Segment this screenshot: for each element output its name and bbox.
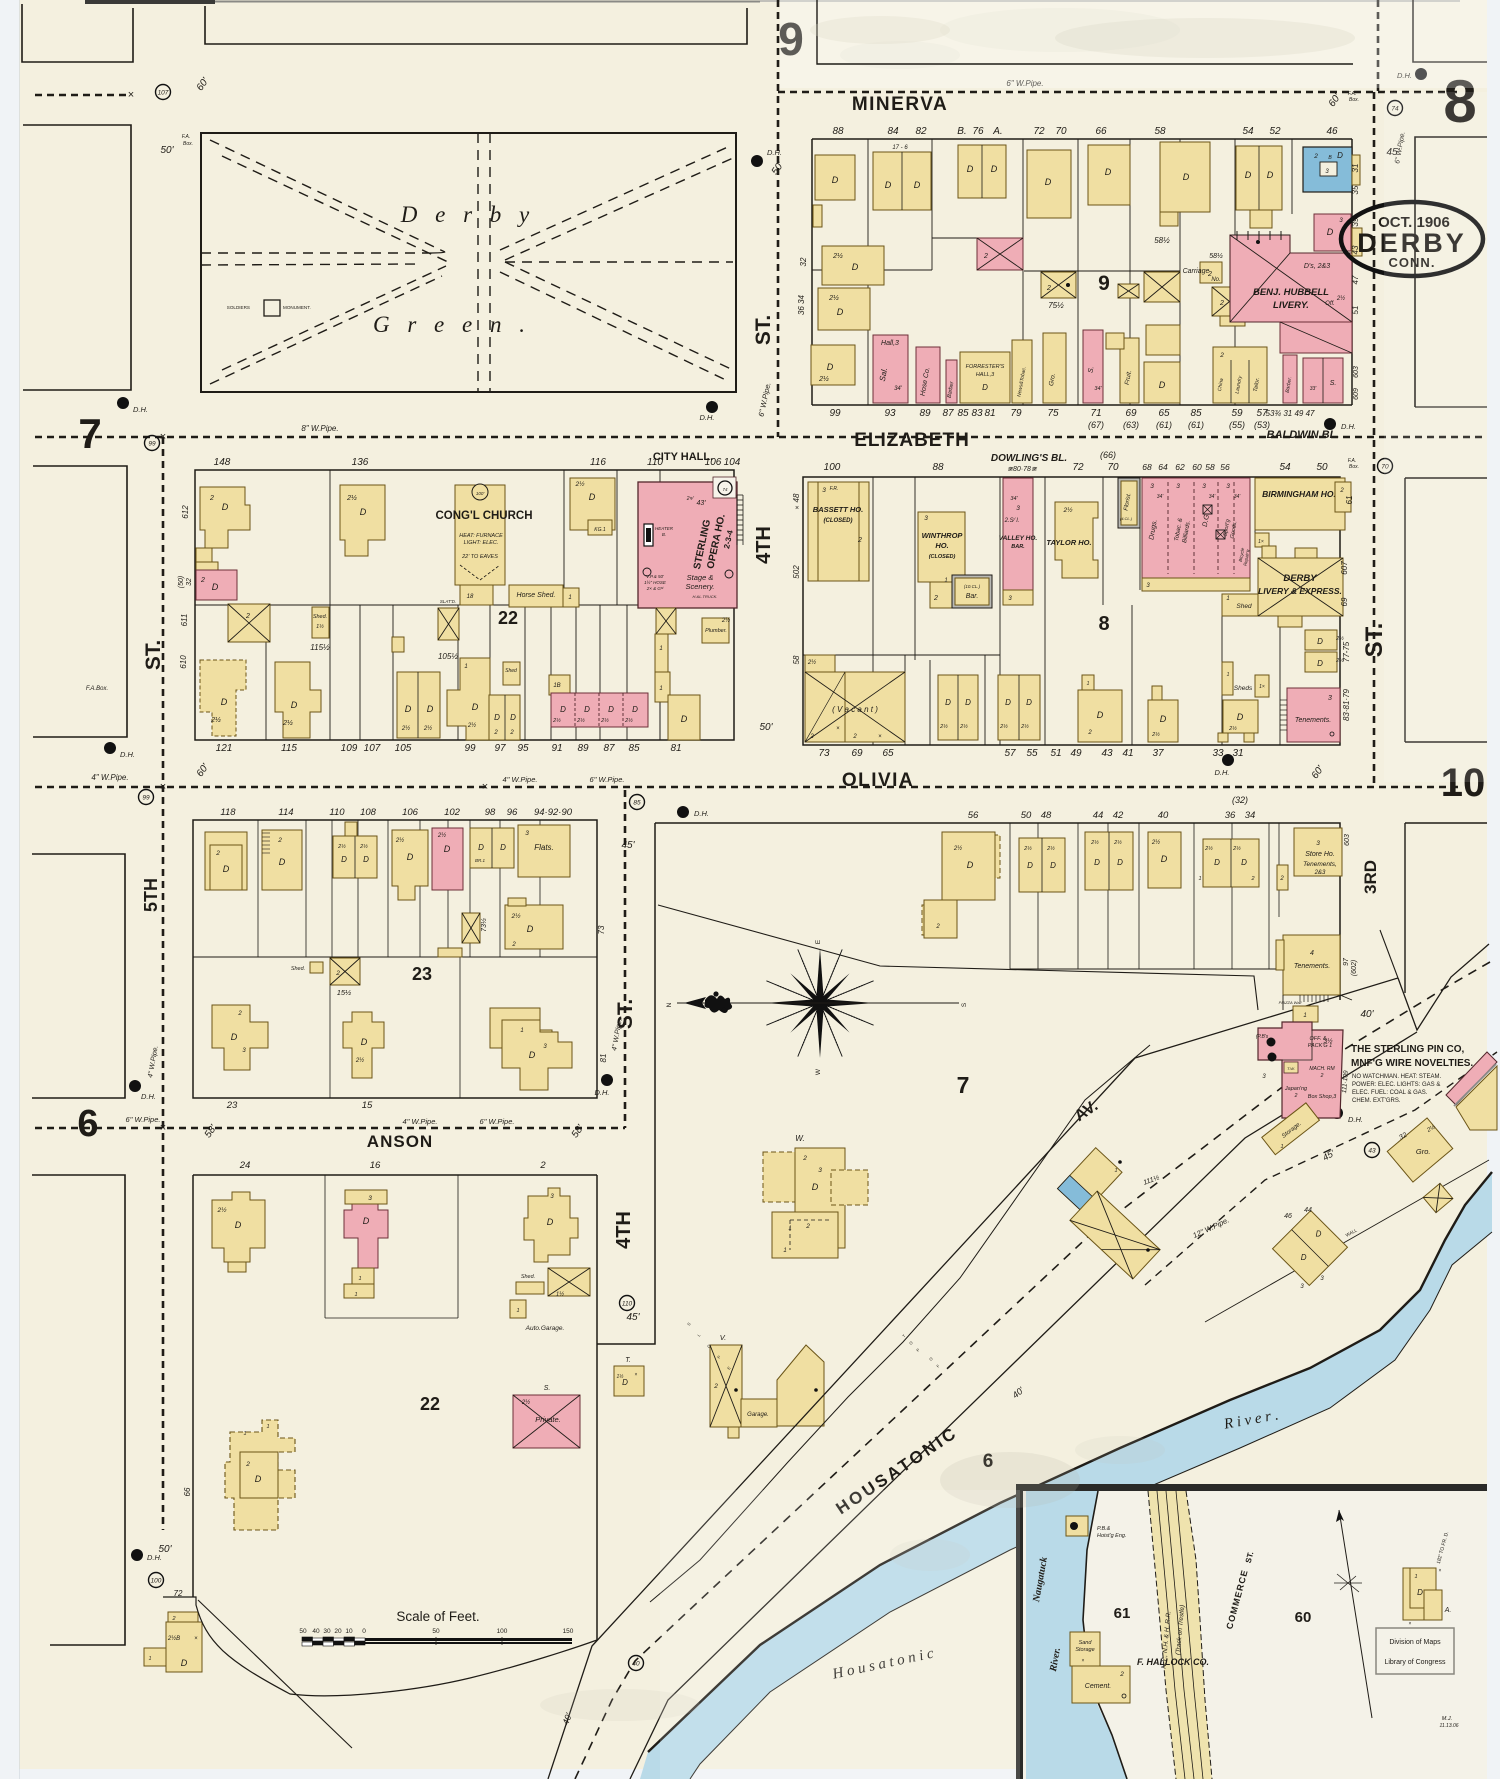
svg-text:2½: 2½ <box>832 252 843 260</box>
svg-text:2½: 2½ <box>1020 723 1029 730</box>
svg-text:43': 43' <box>696 500 706 507</box>
svg-text:D: D <box>1159 380 1166 390</box>
svg-text:A.: A. <box>1444 1607 1452 1614</box>
svg-text:2½: 2½ <box>282 719 293 727</box>
svg-text:D e r b y: D e r b y <box>400 202 535 227</box>
svg-text:Box.: Box. <box>1349 464 1359 470</box>
svg-text:73: 73 <box>597 925 606 934</box>
svg-text:D: D <box>1094 858 1100 867</box>
svg-text:LIGHT: ELEC.: LIGHT: ELEC. <box>464 540 499 546</box>
svg-text:FORRESTER'S: FORRESTER'S <box>966 364 1005 370</box>
svg-text:91: 91 <box>551 743 562 754</box>
svg-text:51: 51 <box>1050 748 1061 759</box>
svg-text:44: 44 <box>1304 1207 1312 1214</box>
svg-text:D: D <box>584 705 590 714</box>
svg-text:ANSON: ANSON <box>367 1132 433 1151</box>
svg-text:1: 1 <box>1114 1168 1117 1174</box>
svg-text:61: 61 <box>1114 1605 1131 1622</box>
svg-text:16: 16 <box>370 1160 381 1171</box>
svg-text:2: 2 <box>933 595 938 602</box>
svg-text:D: D <box>1237 712 1244 722</box>
svg-text:50: 50 <box>299 1628 307 1635</box>
svg-text:T.: T. <box>625 1357 631 1364</box>
svg-text:98: 98 <box>485 807 496 818</box>
svg-text:Garage.: Garage. <box>747 1412 769 1418</box>
svg-text:41: 41 <box>1122 748 1133 759</box>
svg-text:89: 89 <box>919 408 931 419</box>
svg-text:D: D <box>1317 659 1323 668</box>
svg-text:CHEM. EXT'GRS.: CHEM. EXT'GRS. <box>1352 1098 1401 1104</box>
svg-text:DOWLING'S BL.: DOWLING'S BL. <box>991 453 1067 464</box>
svg-text:Carriage: Carriage <box>1183 268 1210 275</box>
svg-text:Shed.: Shed. <box>313 614 327 620</box>
svg-text:1: 1 <box>783 1248 786 1254</box>
svg-text:D: D <box>967 164 974 174</box>
svg-text:54: 54 <box>1279 462 1291 473</box>
svg-text:D: D <box>1317 637 1323 646</box>
svg-text:2: 2 <box>245 613 250 620</box>
svg-text:D: D <box>510 713 516 722</box>
svg-text:84: 84 <box>887 126 899 137</box>
svg-text:3: 3 <box>818 1167 822 1174</box>
svg-text:S: S <box>961 1002 968 1007</box>
svg-text:Box.: Box. <box>183 141 193 147</box>
svg-text:56: 56 <box>1220 462 1230 472</box>
svg-text:×: × <box>160 1122 166 1134</box>
svg-text:2½: 2½ <box>216 1206 227 1214</box>
svg-text:MONUMENT.: MONUMENT. <box>283 305 311 310</box>
svg-text:100: 100 <box>824 462 841 473</box>
svg-text:HO.: HO. <box>935 541 948 550</box>
svg-text:1: 1 <box>1198 876 1201 882</box>
svg-text:55: 55 <box>1026 748 1038 759</box>
svg-text:4" W.Pipe.: 4" W.Pipe. <box>91 773 128 782</box>
svg-text:D: D <box>812 1182 819 1192</box>
svg-text:D: D <box>444 844 451 854</box>
svg-text:60: 60 <box>1295 1609 1312 1626</box>
svg-text:42: 42 <box>1113 810 1124 821</box>
svg-text:85: 85 <box>1190 408 1202 419</box>
svg-text:75: 75 <box>1047 408 1059 419</box>
svg-text:2: 2 <box>1219 352 1224 359</box>
svg-text:Flats.: Flats. <box>534 843 554 852</box>
svg-text:D: D <box>1117 858 1123 867</box>
svg-text:610: 610 <box>179 655 188 669</box>
svg-text:×: × <box>194 1636 198 1642</box>
svg-text:Off.: Off. <box>1325 301 1335 307</box>
svg-text:(63): (63) <box>1123 420 1139 430</box>
svg-text:OLIVIA: OLIVIA <box>842 770 914 791</box>
svg-text:1: 1 <box>659 686 662 692</box>
svg-text:48: 48 <box>792 493 801 502</box>
svg-text:3: 3 <box>924 515 928 522</box>
svg-text:D.H.: D.H. <box>1348 1115 1363 1124</box>
svg-text:2½: 2½ <box>437 832 446 839</box>
svg-text:4TH: 4TH <box>613 1211 635 1249</box>
svg-text:2: 2 <box>209 495 214 502</box>
svg-text:LIVERY.: LIVERY. <box>1273 300 1309 311</box>
svg-text:87: 87 <box>942 408 954 419</box>
svg-text:M.J.: M.J. <box>1442 1716 1452 1722</box>
svg-text:D: D <box>852 262 859 272</box>
svg-text:2½: 2½ <box>1046 845 1055 852</box>
svg-text:D: D <box>221 697 228 707</box>
svg-text:3: 3 <box>1150 483 1154 490</box>
svg-text:69: 69 <box>1125 408 1137 419</box>
svg-text:88: 88 <box>832 126 844 137</box>
svg-text:66: 66 <box>1095 126 1107 137</box>
svg-text:BASSETT HO.: BASSETT HO. <box>813 505 863 514</box>
svg-text:2: 2 <box>493 730 498 736</box>
svg-text:2: 2 <box>511 942 516 948</box>
svg-text:(66): (66) <box>1100 450 1116 460</box>
svg-text:D: D <box>945 698 951 707</box>
svg-text:58: 58 <box>1154 126 1166 137</box>
svg-text:1: 1 <box>1226 596 1229 602</box>
svg-text:2½: 2½ <box>576 717 585 724</box>
svg-text:99: 99 <box>464 743 476 754</box>
svg-text:(CLOSED): (CLOSED) <box>929 554 956 560</box>
svg-text:2½: 2½ <box>721 617 730 624</box>
svg-text:35: 35 <box>1351 185 1360 194</box>
svg-text:8: 8 <box>1098 613 1109 635</box>
svg-text:Shed.: Shed. <box>291 966 305 972</box>
svg-text:Hall,3: Hall,3 <box>881 340 899 347</box>
svg-text:WINTHROP: WINTHROP <box>922 531 964 540</box>
svg-text:2: 2 <box>277 837 282 844</box>
svg-text:2½: 2½ <box>401 725 410 732</box>
svg-text:D: D <box>527 924 534 934</box>
svg-text:2½: 2½ <box>1335 635 1344 642</box>
svg-text:46: 46 <box>1284 1213 1292 1220</box>
svg-text:HALL,3: HALL,3 <box>976 372 995 378</box>
svg-text:603: 603 <box>1353 366 1360 378</box>
svg-text:502: 502 <box>792 565 801 579</box>
svg-text:×: × <box>482 781 488 793</box>
svg-text:34': 34' <box>1157 494 1165 500</box>
svg-text:NO WATCHMAN. HEAT: STEAM.: NO WATCHMAN. HEAT: STEAM. <box>1352 1074 1442 1080</box>
svg-text:43: 43 <box>1101 748 1113 759</box>
svg-text:1: 1 <box>568 595 571 601</box>
svg-text:S.: S. <box>544 1385 551 1392</box>
svg-text:2: 2 <box>1119 1671 1124 1678</box>
svg-text:0: 0 <box>362 1628 366 1635</box>
svg-text:1: 1 <box>944 578 947 584</box>
svg-text:D: D <box>982 383 988 392</box>
svg-text:45': 45' <box>621 840 635 851</box>
svg-text:23: 23 <box>226 1100 238 1111</box>
svg-text:100': 100' <box>476 491 485 496</box>
svg-text:69: 69 <box>851 748 863 759</box>
svg-text:ST.: ST. <box>142 640 165 670</box>
svg-text:1: 1 <box>243 1431 246 1437</box>
svg-text:64: 64 <box>1158 462 1168 472</box>
svg-text:1B: 1B <box>553 683 560 689</box>
svg-text:1: 1 <box>659 646 662 652</box>
svg-text:D: D <box>494 713 500 722</box>
svg-text:58: 58 <box>1205 462 1215 472</box>
svg-text:148: 148 <box>214 457 231 468</box>
svg-text:D: D <box>181 1658 188 1668</box>
svg-text:83·81·79: 83·81·79 <box>1342 688 1351 721</box>
svg-text:SOLDIERS: SOLDIERS <box>227 305 250 310</box>
svg-text:D's, 2&3: D's, 2&3 <box>1304 263 1330 270</box>
svg-text:P.B.&: P.B.& <box>1097 1526 1111 1532</box>
svg-text:3: 3 <box>368 1195 372 1202</box>
svg-text:45': 45' <box>626 1312 640 1323</box>
svg-text:2½: 2½ <box>1336 295 1345 302</box>
svg-text:V.: V. <box>720 1333 727 1342</box>
svg-text:D.H.: D.H. <box>1215 768 1230 777</box>
svg-text:87: 87 <box>603 743 615 754</box>
svg-text:9: 9 <box>1098 272 1110 295</box>
svg-text:609: 609 <box>1353 388 1360 400</box>
svg-text:31: 31 <box>1351 164 1360 173</box>
svg-text:2: 2 <box>215 850 220 857</box>
svg-text:2: 2 <box>805 1223 810 1230</box>
svg-text:105½: 105½ <box>438 652 458 661</box>
svg-text:2½: 2½ <box>1113 839 1122 846</box>
svg-text:2½: 2½ <box>1023 845 1032 852</box>
svg-text:2: 2 <box>1046 285 1051 292</box>
svg-text:(61): (61) <box>1188 420 1204 430</box>
svg-text:1: 1 <box>1303 1013 1306 1019</box>
svg-text:24: 24 <box>239 1160 251 1171</box>
svg-text:107: 107 <box>364 743 381 754</box>
svg-text:1: 1 <box>1227 672 1230 678</box>
svg-text:×: × <box>635 1372 638 1378</box>
svg-text:34': 34' <box>1209 494 1217 500</box>
svg-text:85: 85 <box>628 743 640 754</box>
svg-text:2: 2 <box>1219 300 1224 307</box>
svg-text:74: 74 <box>722 487 728 492</box>
svg-text:D.H.: D.H. <box>767 148 782 157</box>
svg-text:Cement.: Cement. <box>1085 1683 1112 1690</box>
svg-text:44: 44 <box>1093 810 1104 821</box>
svg-text:(10.CL.): (10.CL.) <box>964 584 981 589</box>
svg-text:Sand: Sand <box>1079 1640 1093 1646</box>
svg-text:D: D <box>341 855 347 864</box>
svg-text:D: D <box>529 1050 536 1060</box>
svg-text:2: 2 <box>1087 730 1092 736</box>
svg-text:D: D <box>361 1037 368 1047</box>
svg-text:MINERVA: MINERVA <box>852 94 948 115</box>
svg-text:D.H.: D.H. <box>1341 422 1356 431</box>
svg-text:72: 72 <box>1033 126 1045 137</box>
svg-text:Division of Maps: Division of Maps <box>1389 1639 1441 1646</box>
svg-text:48: 48 <box>1041 810 1052 821</box>
svg-text:V.P.& 50': V.P.& 50' <box>646 574 664 579</box>
svg-text:99: 99 <box>148 440 156 447</box>
svg-text:D.H.: D.H. <box>133 405 148 414</box>
svg-text:7: 7 <box>957 1072 970 1098</box>
svg-text:F.A.Box.: F.A.Box. <box>86 686 108 692</box>
svg-text:D: D <box>967 860 974 870</box>
svg-text:Storage: Storage <box>1075 1647 1094 1653</box>
svg-text:102: 102 <box>444 807 461 818</box>
svg-text:D: D <box>472 702 479 712</box>
svg-text:MNF'G WIRE NOVELTIES.: MNF'G WIRE NOVELTIES. <box>1351 1058 1473 1069</box>
svg-text:75½: 75½ <box>1048 301 1064 310</box>
svg-text:(CLOSED): (CLOSED) <box>824 518 853 524</box>
svg-text:22: 22 <box>498 608 518 628</box>
svg-text:3: 3 <box>1316 840 1320 847</box>
svg-text:Horse Shed.: Horse Shed. <box>517 592 556 599</box>
svg-text:D: D <box>1214 858 1220 867</box>
svg-text:D: D <box>363 1216 370 1226</box>
svg-text:×: × <box>1082 1658 1085 1664</box>
svg-text:83: 83 <box>971 408 983 419</box>
svg-text:110: 110 <box>647 457 663 468</box>
svg-text:77-75: 77-75 <box>1342 641 1351 662</box>
svg-text:81: 81 <box>599 1054 608 1063</box>
svg-text:THE STERLING PIN CO,: THE STERLING PIN CO, <box>1351 1044 1465 1055</box>
svg-text:115½: 115½ <box>310 643 330 652</box>
svg-text:68: 68 <box>1142 462 1152 472</box>
svg-text:Private.: Private. <box>535 1415 560 1424</box>
svg-text:2: 2 <box>509 730 514 736</box>
svg-text:2×⁄: 2×⁄ <box>686 496 695 502</box>
svg-text:BAR.: BAR. <box>1011 544 1025 550</box>
svg-text:(4.CL.): (4.CL.) <box>1120 516 1133 521</box>
svg-text:4TH: 4TH <box>753 526 775 564</box>
svg-text:2½: 2½ <box>1151 731 1160 738</box>
svg-text:D: D <box>1327 227 1334 237</box>
svg-text:114: 114 <box>278 807 293 818</box>
svg-text:110: 110 <box>329 807 345 818</box>
svg-text:2: 2 <box>335 970 340 977</box>
svg-text:2: 2 <box>857 537 862 544</box>
svg-text:D: D <box>212 582 219 592</box>
svg-text:46: 46 <box>1326 126 1338 137</box>
svg-text:1×: 1× <box>1258 539 1264 545</box>
svg-text:DERBY: DERBY <box>1283 573 1318 584</box>
svg-text:49: 49 <box>1070 748 1082 759</box>
svg-text:Tenements,: Tenements, <box>1303 861 1337 868</box>
svg-text:W: W <box>815 1068 822 1075</box>
svg-text:72: 72 <box>1072 462 1084 473</box>
svg-text:136: 136 <box>352 457 369 468</box>
svg-text:607: 607 <box>1340 561 1349 575</box>
svg-text:(P.B's: (P.B's <box>1256 1034 1269 1040</box>
svg-text:×: × <box>160 431 166 443</box>
svg-text:D: D <box>1005 698 1011 707</box>
svg-text:47: 47 <box>1351 275 1360 284</box>
svg-text:G r e e n .: G r e e n . <box>373 312 531 337</box>
svg-text:36 34: 36 34 <box>797 294 806 315</box>
svg-text:1½: 1½ <box>556 1291 564 1298</box>
svg-text:2: 2 <box>1279 876 1284 882</box>
svg-text:D: D <box>1027 861 1033 870</box>
svg-text:71: 71 <box>1090 408 1101 419</box>
svg-text:4" W.Pipe.: 4" W.Pipe. <box>403 1117 438 1126</box>
svg-text:1: 1 <box>788 1226 791 1232</box>
svg-text:D: D <box>589 492 596 502</box>
svg-text:BENJ. HUBBELL: BENJ. HUBBELL <box>1253 287 1329 298</box>
svg-text:D: D <box>255 1474 262 1484</box>
svg-text:62: 62 <box>1175 462 1185 472</box>
svg-text:2: 2 <box>852 734 857 740</box>
svg-text:Bar.: Bar. <box>966 593 979 600</box>
svg-text:D: D <box>1267 170 1274 180</box>
svg-text:2½: 2½ <box>600 717 609 724</box>
svg-text:ELIZABETH: ELIZABETH <box>854 430 970 451</box>
svg-text:Tenements.: Tenements. <box>1295 717 1331 724</box>
svg-text:Box Shop,3: Box Shop,3 <box>1308 1094 1337 1100</box>
svg-text:2: 2 <box>1320 1073 1324 1079</box>
svg-text:17 - 6: 17 - 6 <box>892 145 908 151</box>
svg-text:2½: 2½ <box>210 716 221 724</box>
svg-text:×: × <box>795 505 799 512</box>
svg-text:Scenery.: Scenery. <box>685 582 714 591</box>
svg-text:54: 54 <box>1242 126 1254 137</box>
svg-text:2½B: 2½B <box>167 1635 180 1642</box>
svg-text:D: D <box>1241 858 1247 867</box>
svg-text:D: D <box>360 507 367 517</box>
svg-text:57: 57 <box>1004 748 1016 759</box>
svg-text:33': 33' <box>1310 386 1318 392</box>
svg-text:60: 60 <box>1192 462 1202 472</box>
svg-text:B.: B. <box>957 126 966 137</box>
svg-text:D: D <box>363 855 369 864</box>
svg-text:(50): (50) <box>178 576 185 588</box>
svg-text:B.: B. <box>662 532 666 537</box>
svg-text:CONG'L CHURCH: CONG'L CHURCH <box>435 510 532 522</box>
svg-text:D: D <box>279 857 286 867</box>
svg-text:1: 1 <box>464 664 467 670</box>
svg-text:2½: 2½ <box>355 1057 364 1064</box>
svg-text:2: 2 <box>809 734 814 740</box>
svg-text:MACH. RM: MACH. RM <box>1309 1066 1335 1072</box>
svg-text:2½: 2½ <box>467 722 476 729</box>
svg-text:D: D <box>500 843 506 852</box>
svg-text:Store Ho.: Store Ho. <box>1305 851 1335 858</box>
svg-text:85: 85 <box>957 408 969 419</box>
svg-text:2½: 2½ <box>552 717 561 724</box>
svg-text:121: 121 <box>216 743 233 754</box>
svg-text:TAYLOR HO.: TAYLOR HO. <box>1046 538 1091 547</box>
svg-text:1: 1 <box>1087 681 1090 687</box>
svg-text:3: 3 <box>1328 695 1332 702</box>
svg-text:3: 3 <box>525 830 529 837</box>
svg-text:88: 88 <box>932 462 944 473</box>
svg-text:4" W.Pipe.: 4" W.Pipe. <box>503 775 538 784</box>
svg-text:D: D <box>1337 151 1343 160</box>
svg-text:2½: 2½ <box>807 659 816 666</box>
svg-text:40': 40' <box>1360 1009 1374 1020</box>
svg-text:70: 70 <box>1107 462 1119 473</box>
svg-text:94·92·90: 94·92·90 <box>534 807 573 818</box>
svg-text:D: D <box>827 362 834 372</box>
svg-text:73½: 73½ <box>480 918 488 932</box>
svg-text:30: 30 <box>323 1628 331 1635</box>
svg-text:58½: 58½ <box>1154 236 1170 245</box>
svg-text:51: 51 <box>1351 306 1360 315</box>
svg-text:D: D <box>1160 714 1167 724</box>
svg-text:56: 56 <box>968 810 979 821</box>
svg-text:2½: 2½ <box>1232 845 1241 852</box>
svg-text:81: 81 <box>670 743 681 754</box>
svg-text:Shed: Shed <box>505 668 517 674</box>
svg-text:22: 22 <box>420 1394 440 1414</box>
svg-text:ELEC. FUEL: COAL & GAS.: ELEC. FUEL: COAL & GAS. <box>1352 1090 1428 1096</box>
svg-text:×: × <box>128 89 134 101</box>
svg-text:KG.1: KG.1 <box>594 527 606 533</box>
svg-text:1: 1 <box>1414 1574 1417 1580</box>
svg-text:×: × <box>878 734 882 740</box>
svg-text:110: 110 <box>622 1300 633 1307</box>
svg-text:2: 2 <box>245 1461 250 1468</box>
